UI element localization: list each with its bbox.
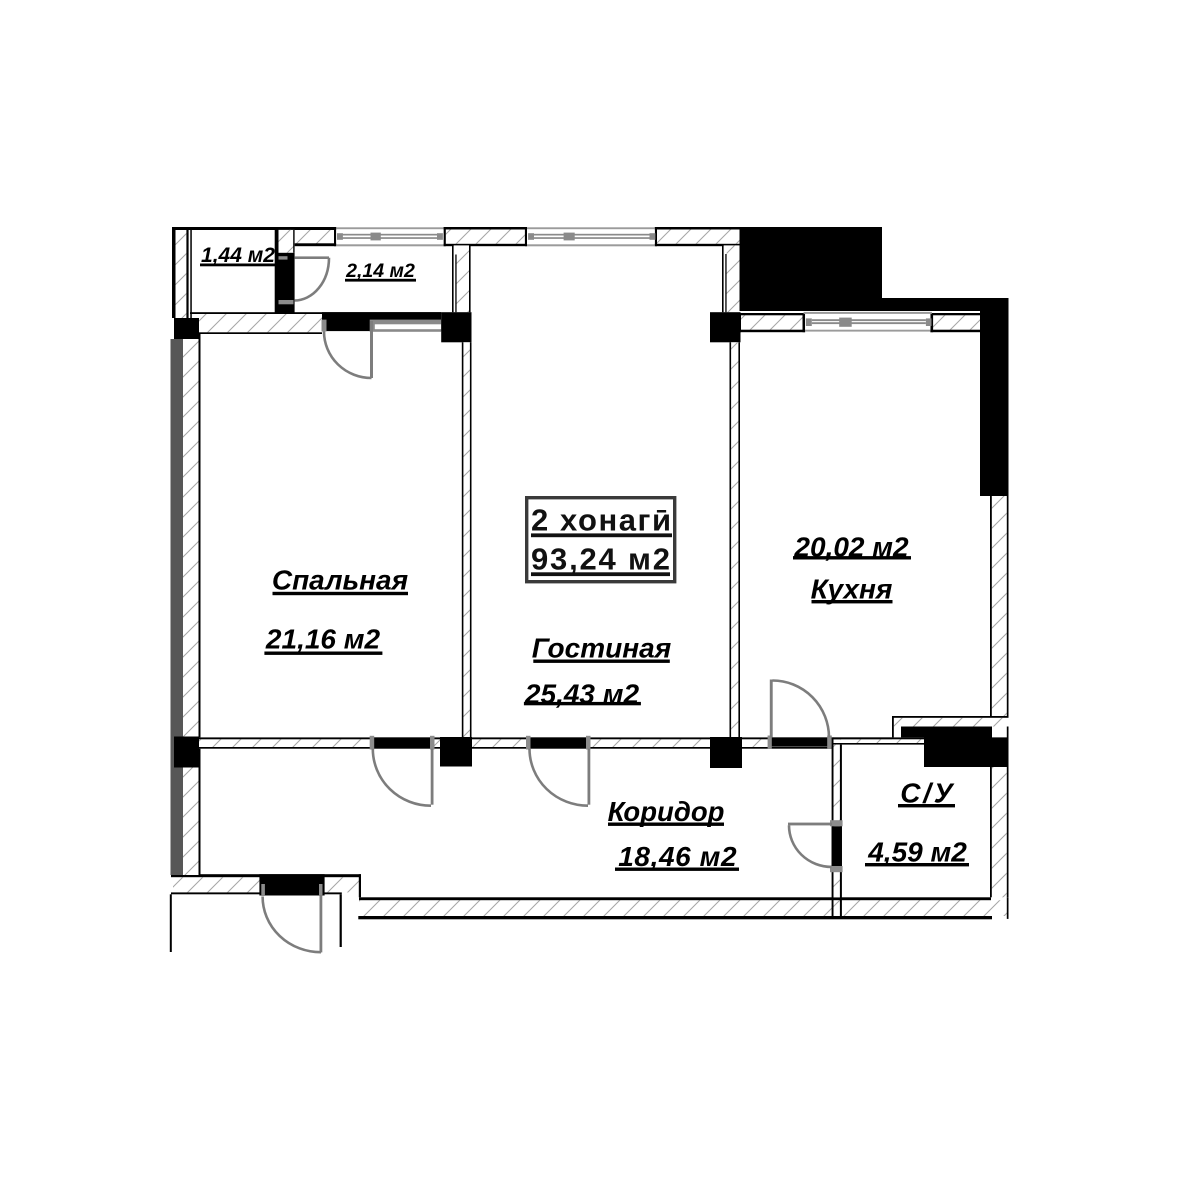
svg-text:18,46 м2: 18,46 м2 <box>618 841 737 872</box>
svg-text:2 хонагӣ: 2 хонагӣ <box>531 503 673 538</box>
svg-text:С/У: С/У <box>900 778 955 809</box>
svg-text:Спальная: Спальная <box>272 565 408 596</box>
svg-text:93,24 м2: 93,24 м2 <box>531 542 672 577</box>
svg-text:Кухня: Кухня <box>811 574 893 605</box>
svg-text:4,59 м2: 4,59 м2 <box>867 837 967 868</box>
svg-text:2,14 м2: 2,14 м2 <box>345 260 415 282</box>
svg-text:Гостиная: Гостиная <box>532 633 671 664</box>
svg-text:21,16 м2: 21,16 м2 <box>265 624 381 655</box>
svg-text:Коридор: Коридор <box>608 796 725 827</box>
